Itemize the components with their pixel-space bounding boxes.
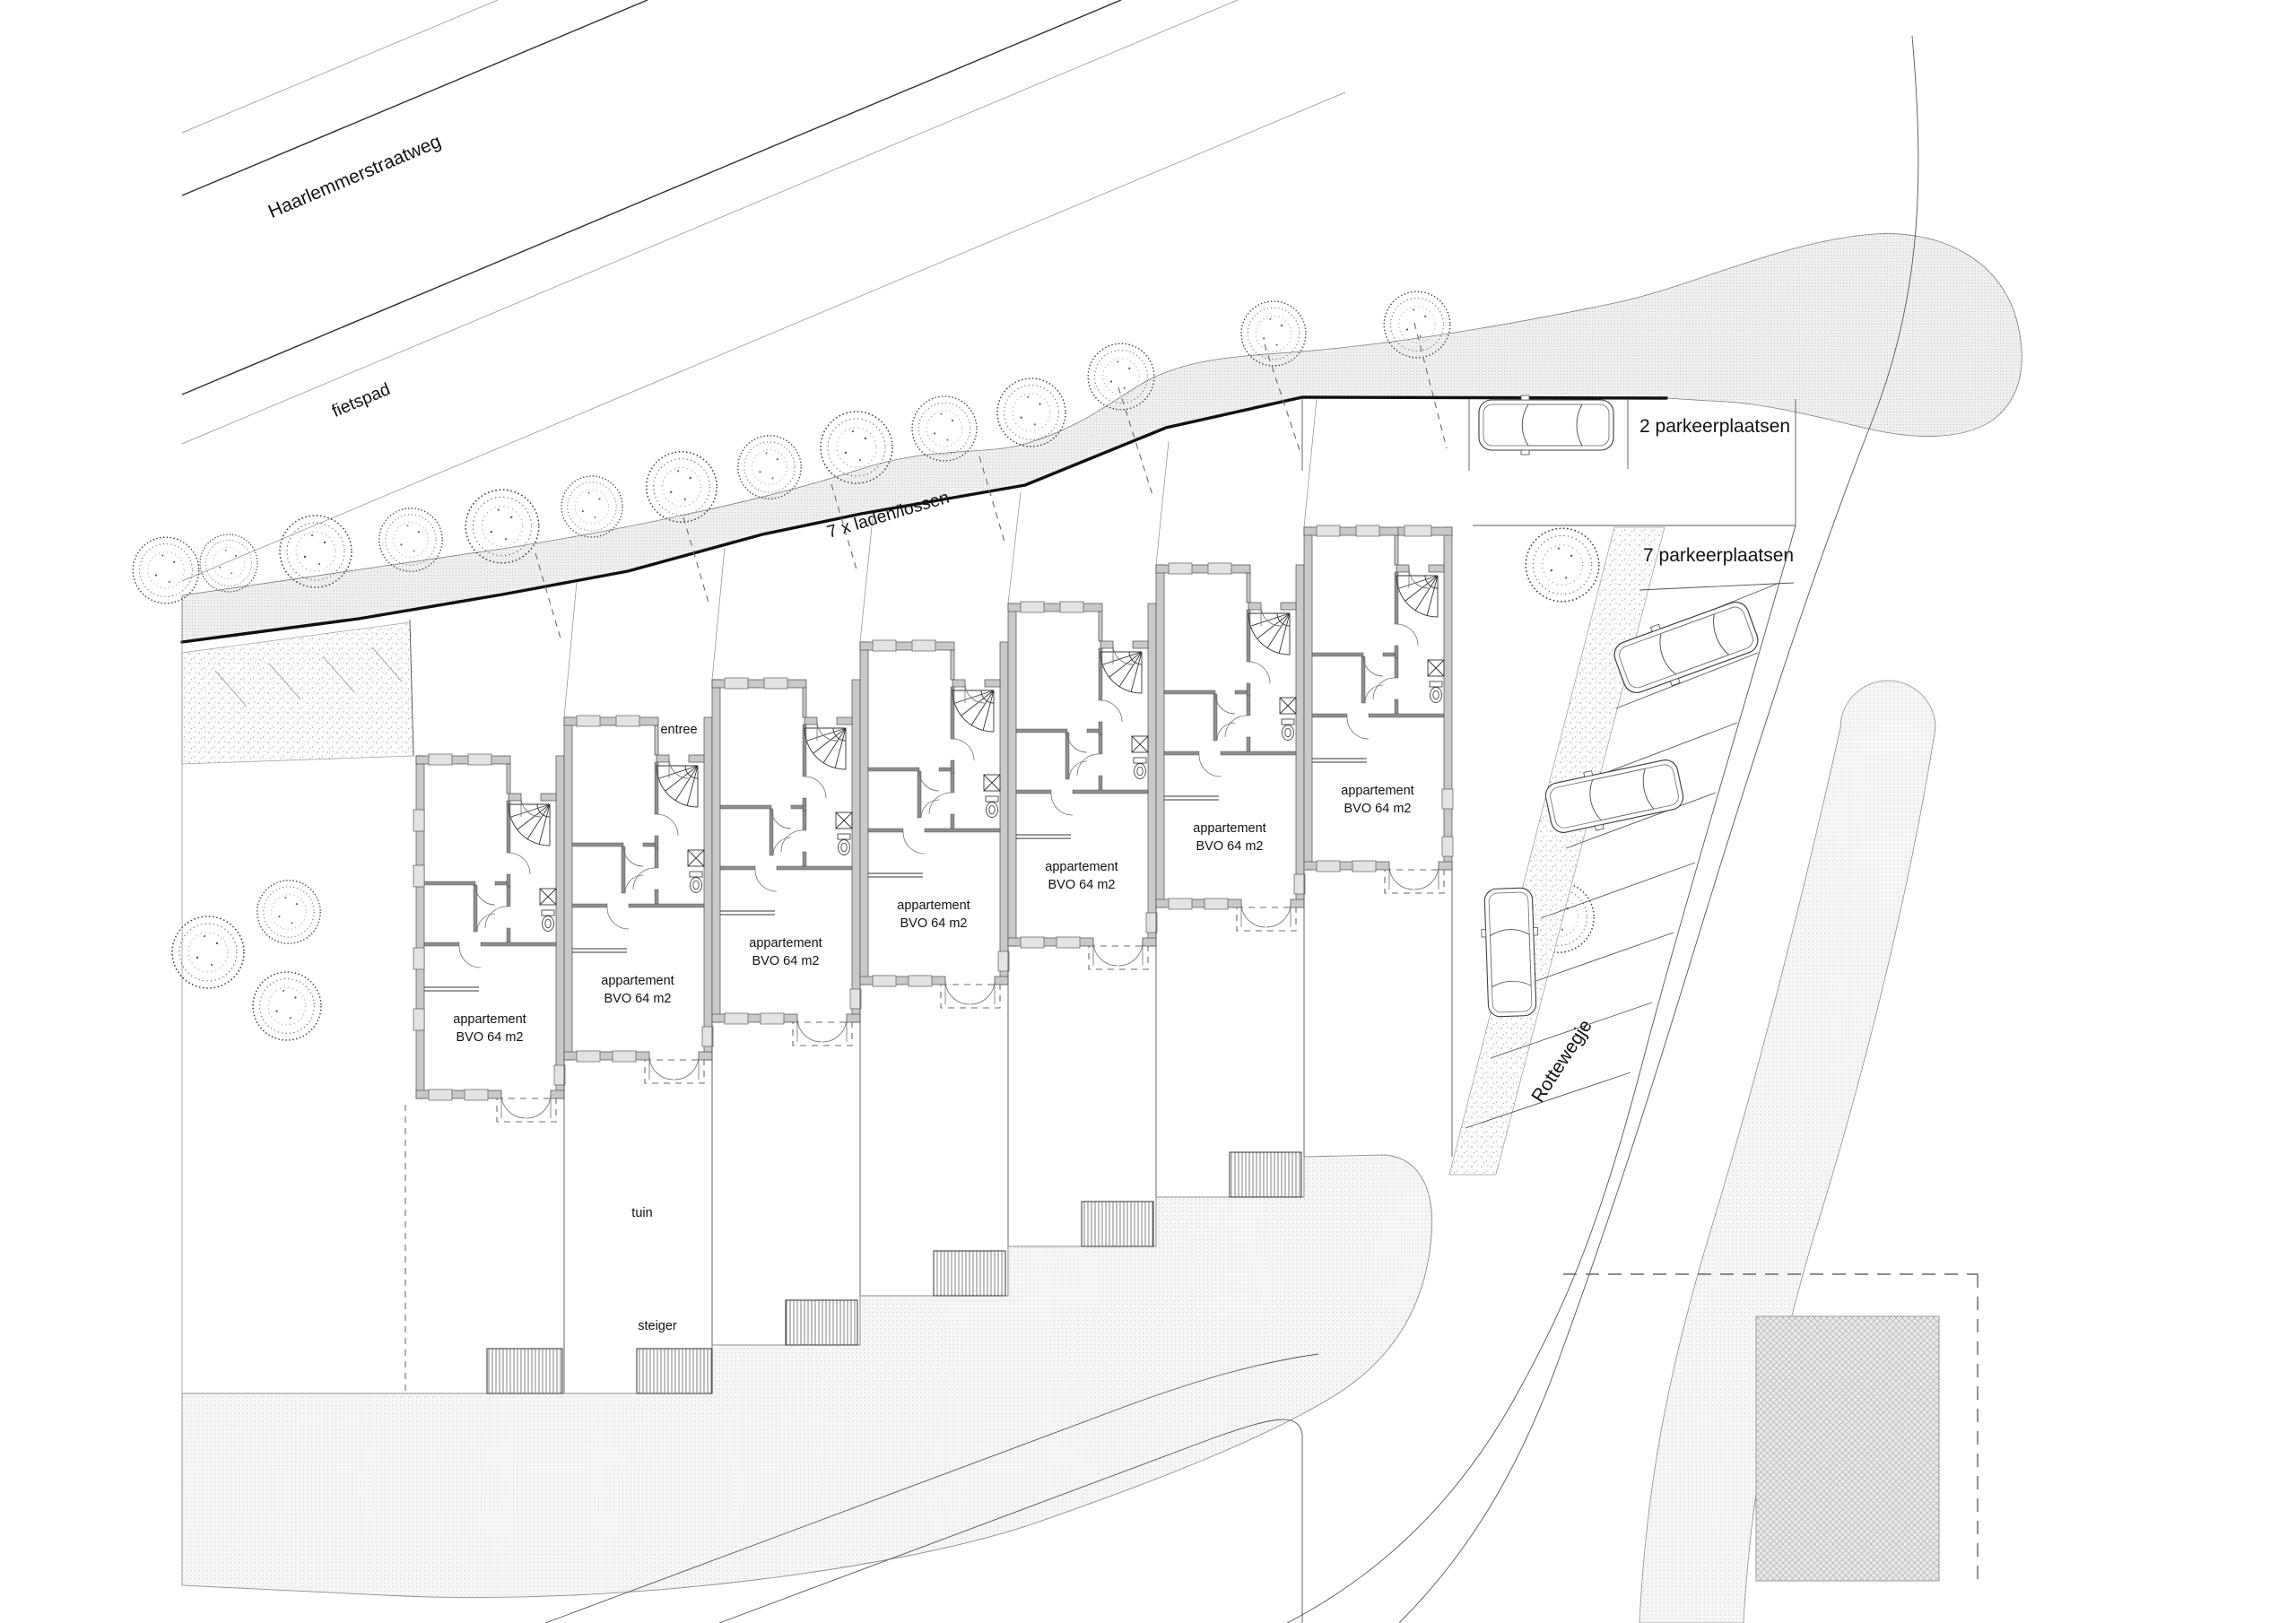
tree-icon <box>172 916 244 988</box>
apartment-unit-1: appartement BVO 64 m2 <box>413 754 565 1122</box>
car-icon <box>1479 395 1613 455</box>
parking-7-label: 7 parkeerplaatsen <box>1643 545 1794 566</box>
tree-icon <box>257 881 320 943</box>
site-plan-canvas: Haarlemmerstraatweg fietspad <box>0 0 2296 1623</box>
apartment-unit-2: appartement BVO 64 m2 <box>564 716 713 1083</box>
embankment <box>182 595 413 1393</box>
tree-icon <box>253 972 321 1040</box>
unit-area-label: BVO 64 m2 <box>1196 839 1264 854</box>
unit-label: appartement <box>1193 821 1265 836</box>
apartment-unit-7: appartement BVO 64 m2 <box>1304 525 1453 893</box>
car-icon <box>1480 888 1541 1018</box>
unit-label: appartement <box>1045 860 1118 874</box>
street-label-rottewegje: Rottewegje <box>1527 1016 1596 1107</box>
apartment-unit-6: appartement BVO 64 m2 <box>1156 563 1305 931</box>
entrance-label: entree <box>660 723 697 737</box>
parking-lot-2: 2 parkeerplaatsen <box>1302 395 1796 525</box>
parking-2-label: 2 parkeerplaatsen <box>1639 416 1790 437</box>
unit-label: appartement <box>453 1012 526 1027</box>
road-haarlemmerstraatweg <box>182 0 1345 581</box>
tree-icon <box>133 537 199 603</box>
unit-label: appartement <box>749 936 822 950</box>
tree-icon <box>1526 528 1599 602</box>
tree-icon <box>561 476 622 537</box>
unit-area-label: BVO 64 m2 <box>1048 878 1116 892</box>
property-boundaries <box>1563 1274 1978 1581</box>
garden-label: tuin <box>631 1206 652 1220</box>
street-label-fietspad: fietspad <box>329 379 393 421</box>
unit-label: appartement <box>601 974 674 988</box>
street-label-haarlemmerstraatweg: Haarlemmerstraatweg <box>265 131 444 222</box>
parking-lot-7: 7 parkeerplaatsen <box>1449 527 1794 1175</box>
jetty-label: steiger <box>638 1319 677 1333</box>
tree-icon <box>200 534 257 592</box>
unit-area-label: BVO 64 m2 <box>900 916 968 931</box>
unit-area-label: BVO 64 m2 <box>1344 802 1412 816</box>
unit-area-label: BVO 64 m2 <box>604 992 672 1006</box>
shore <box>182 1152 1432 1623</box>
sidewalk-berm <box>182 234 2022 642</box>
unit-area-label: BVO 64 m2 <box>752 954 820 968</box>
unit-area-label: BVO 64 m2 <box>457 1030 524 1045</box>
apartment-unit-4: appartement BVO 64 m2 <box>860 640 1009 1008</box>
site-plan-drawing: Haarlemmerstraatweg fietspad <box>0 0 2296 1623</box>
unit-label: appartement <box>897 898 970 913</box>
unit-label: appartement <box>1341 784 1413 798</box>
apartment-unit-5: appartement BVO 64 m2 <box>1008 602 1157 969</box>
apartment-unit-3: appartement BVO 64 m2 <box>712 678 861 1046</box>
neighbor-building-footprint <box>1756 1316 1939 1581</box>
apartment-row: appartement BVO 64 m2 appartement BVO 64… <box>413 525 1453 1122</box>
